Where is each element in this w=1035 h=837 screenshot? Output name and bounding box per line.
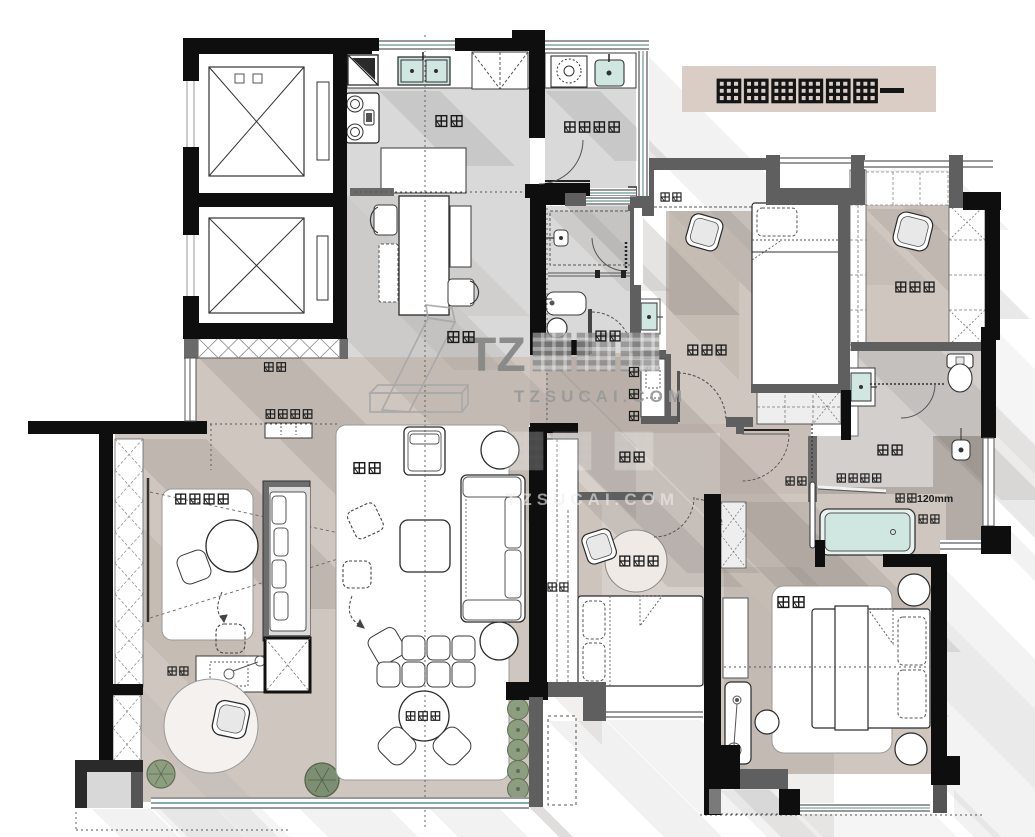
svg-text:TZ: TZ: [467, 329, 526, 382]
svg-text:TZSUCAI.COM: TZSUCAI.COM: [514, 387, 687, 406]
svg-text:TZSUCAI.COM: TZSUCAI.COM: [506, 490, 679, 509]
svg-text:120mm: 120mm: [917, 493, 953, 505]
